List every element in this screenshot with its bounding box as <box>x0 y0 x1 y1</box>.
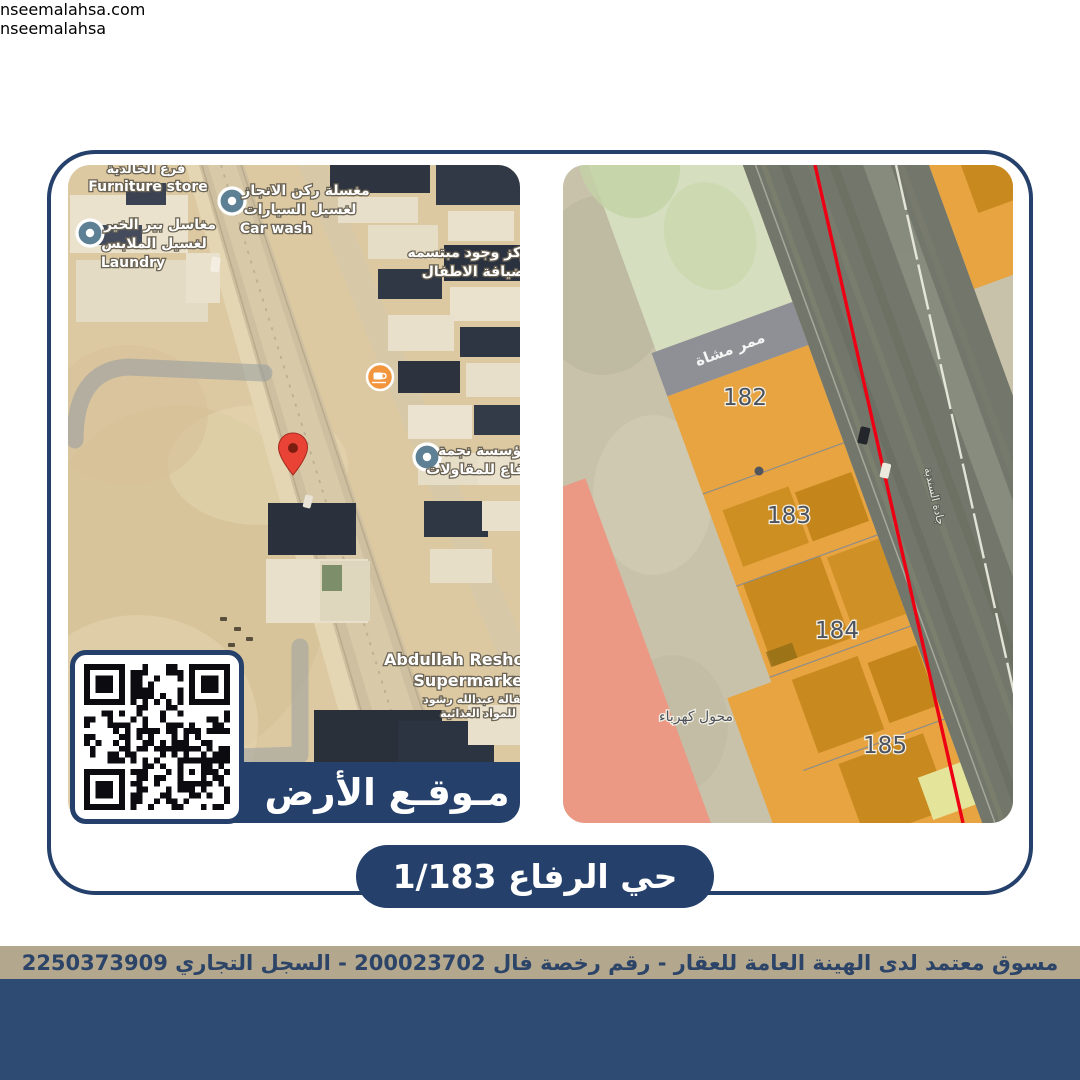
carwash-label-ar1: مغسلة ركن الانجاز <box>241 183 369 199</box>
qr-code <box>70 650 244 824</box>
survey-dot <box>755 467 764 476</box>
title-pill-text: حي الرفاع 1/183 <box>393 857 678 896</box>
parcel-number-183: 183 <box>767 503 811 529</box>
kids-center-label-ar1: مركز وجود مبتسمه <box>408 245 520 261</box>
qr-pattern <box>84 664 230 810</box>
parcel-number-182: 182 <box>723 385 767 411</box>
website-text: nseemalahsa.com <box>0 0 295 19</box>
parcel-number-184: 184 <box>815 618 859 644</box>
furniture-label-ar: فرع الخالدية <box>107 165 186 177</box>
laundry-label-ar1: مغاسل بير الخير <box>103 217 216 233</box>
carwash-label-ar2: لغسيل السيارات <box>244 202 357 218</box>
flyer-canvas: فرع الخالدية Furniture store مغسلة ركن ا… <box>0 0 1080 1080</box>
laundry-pin-icon <box>77 220 103 246</box>
najma-label-ar2: لرفاع للمقاولات <box>426 462 520 478</box>
license-bar: مسوق معتمد لدى الهينة العامة للعقار - رق… <box>0 946 1080 979</box>
supermarket-label-en1: Abdullah Reshod <box>384 650 520 669</box>
supermarket-label-ar1: بقالة عبدالله رشود <box>423 693 520 706</box>
license-bar-text: مسوق معتمد لدى الهينة العامة للعقار - رق… <box>22 951 1059 975</box>
supermarket-label-en2: Supermarket <box>413 671 520 690</box>
parcel-map: ممر مشاة 182 183 184 185 محول كهرباء جاد… <box>563 165 1013 823</box>
footer-band <box>0 979 1080 1080</box>
cafe-icon <box>367 364 393 390</box>
kids-center-label-ar2: لضيافة الاطفال <box>422 264 520 280</box>
carwash-pin-icon <box>219 188 245 214</box>
laundry-label-en: Laundry <box>101 255 165 271</box>
supermarket-label-ar2: للمواد الغذائية <box>440 707 516 720</box>
laundry-label-ar2: لغسيل الملابس <box>101 236 207 252</box>
carwash-label-en: Car wash <box>240 221 312 237</box>
parcel-number-185: 185 <box>863 733 907 759</box>
najma-label-ar1: مؤسسة نجمة <box>438 443 520 459</box>
location-banner-text: مـوقـع الأرض <box>264 771 509 814</box>
social-handle-text: nseemalahsa <box>0 19 260 38</box>
transformer-label: محول كهرباء <box>659 709 733 725</box>
title-pill: حي الرفاع 1/183 <box>356 845 714 908</box>
parcel-map-panel: ممر مشاة 182 183 184 185 محول كهرباء جاد… <box>563 165 1013 823</box>
furniture-label-en: Furniture store <box>88 179 207 195</box>
